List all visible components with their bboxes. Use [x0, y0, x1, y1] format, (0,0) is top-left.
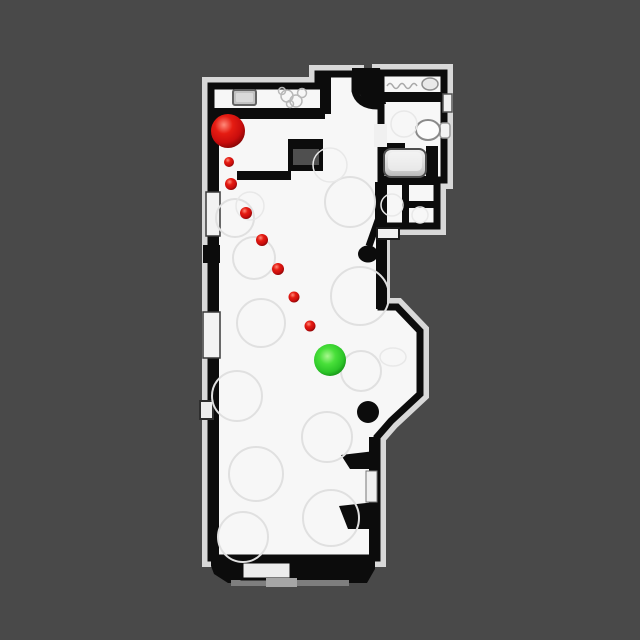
suite-bottom-tab	[377, 228, 399, 239]
right-wall-inset-door	[366, 471, 377, 502]
left-wall-protrusion	[203, 245, 220, 263]
floor-hole-round	[357, 401, 379, 423]
viewport-background	[0, 0, 640, 640]
left-notch-bottom	[200, 401, 213, 419]
green-sphere-marker	[314, 344, 346, 376]
waypoint-dot	[289, 292, 300, 303]
wall-short-left	[237, 171, 291, 180]
wall-tub-right	[426, 146, 438, 180]
waypoint-dot	[256, 234, 268, 246]
wall-midroom-left	[320, 72, 331, 114]
toilet	[416, 120, 450, 140]
left-door-lower	[203, 312, 220, 358]
bottom-white-tab	[242, 562, 291, 579]
bottom-small-gray-tab	[266, 578, 297, 587]
bathtub	[384, 149, 426, 177]
column-blob	[358, 246, 378, 263]
suite-right-knob	[443, 94, 452, 112]
map-viewport[interactable]	[0, 0, 640, 640]
waypoint-dot	[305, 321, 316, 332]
waypoint-dot	[272, 263, 284, 275]
waypoint-dot	[225, 178, 237, 190]
red-sphere-marker	[211, 114, 245, 148]
table-top	[233, 90, 256, 105]
wall-sink-divider	[381, 92, 444, 102]
waypoint-dot	[240, 207, 252, 219]
waypoint-dot	[224, 157, 234, 167]
left-door-upper	[206, 192, 220, 236]
doorway-suite	[374, 124, 387, 147]
floorplan	[200, 68, 452, 587]
sink-basin	[422, 78, 438, 90]
